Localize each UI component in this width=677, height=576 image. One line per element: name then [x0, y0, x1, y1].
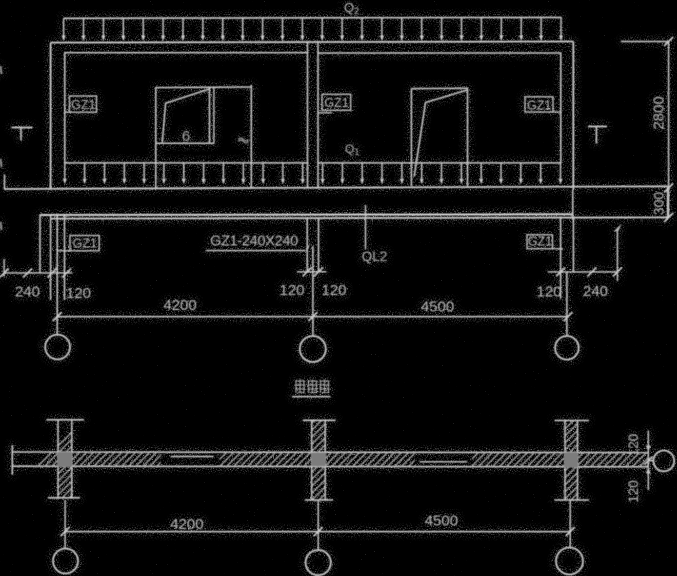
svg-text:4500: 4500 — [425, 513, 458, 530]
svg-text:2800: 2800 — [651, 96, 668, 129]
svg-text:120: 120 — [321, 282, 346, 299]
svg-text:GZ1: GZ1 — [528, 235, 552, 249]
svg-text:GZ1: GZ1 — [71, 98, 95, 112]
svg-text:240: 240 — [15, 284, 40, 301]
svg-text:120: 120 — [279, 282, 304, 299]
svg-text:120: 120 — [626, 480, 641, 503]
svg-text:QL2: QL2 — [362, 249, 388, 264]
svg-text:300: 300 — [651, 192, 667, 216]
svg-text:4200: 4200 — [163, 297, 196, 314]
svg-text:120: 120 — [536, 283, 561, 300]
svg-text:GZ1: GZ1 — [324, 96, 348, 110]
svg-text:120: 120 — [626, 434, 641, 457]
svg-text:6: 6 — [182, 128, 190, 145]
svg-text:4200: 4200 — [170, 516, 203, 533]
svg-text:GZ1-240X240: GZ1-240X240 — [210, 234, 298, 250]
svg-text:240: 240 — [583, 283, 608, 300]
svg-text:GZ1: GZ1 — [527, 98, 551, 112]
svg-text:GZ1: GZ1 — [73, 237, 97, 251]
svg-text:120: 120 — [66, 285, 91, 302]
svg-text:4500: 4500 — [421, 299, 454, 316]
